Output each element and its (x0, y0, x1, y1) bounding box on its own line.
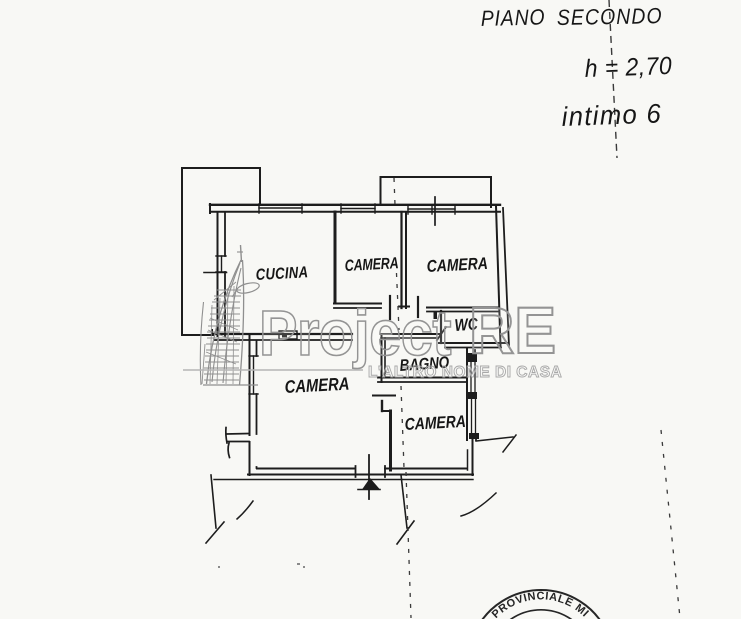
svg-text:CUCINA: CUCINA (255, 264, 308, 284)
svg-text:CAMERA: CAMERA (404, 413, 466, 435)
svg-text:intimo 6: intimo 6 (561, 98, 662, 132)
svg-text:CAMERA: CAMERA (426, 255, 488, 277)
svg-text:SECONDO: SECONDO (557, 4, 663, 30)
svg-text:PIANO: PIANO (480, 5, 545, 31)
svg-text:L'ALTRO NOME DI CASA: L'ALTRO NOME DI CASA (368, 364, 562, 381)
svg-text:CAMERA: CAMERA (284, 374, 350, 397)
svg-text:CAMERA: CAMERA (344, 255, 399, 276)
svg-text:h = 2,70: h = 2,70 (584, 52, 673, 83)
svg-text:RE: RE (469, 294, 556, 368)
svg-text:Project: Project (259, 297, 451, 368)
